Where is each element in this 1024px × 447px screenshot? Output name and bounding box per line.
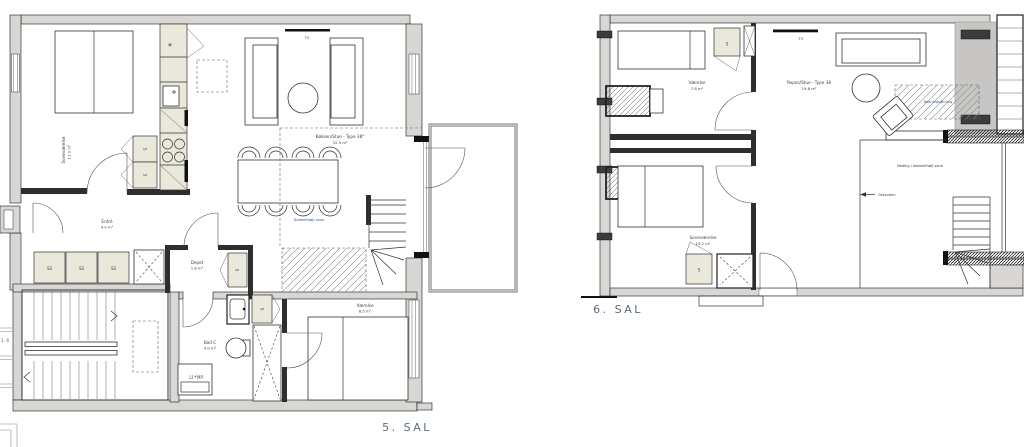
room1-furniture: S [618, 26, 755, 71]
room-label-kitchen-living: Køkken/Stue - Type 38* [316, 134, 365, 139]
kitchen-sink [163, 86, 179, 106]
room-area-bath: 4.0 m² [204, 346, 217, 351]
plan-6-sal: S S [581, 15, 1024, 316]
internal-stair [369, 200, 406, 285]
coffee-table [288, 83, 318, 113]
window-ladder [997, 15, 1023, 134]
dining-table [238, 160, 338, 203]
void-area [860, 140, 947, 288]
double-height-zone-label: Dobbelthøjt zone [294, 218, 326, 222]
room-label-bath: Bad C [204, 340, 216, 345]
wardrobe-label: S [698, 268, 701, 273]
double-height-zone-boundary [280, 128, 422, 292]
wardrobe-label: S [260, 308, 265, 311]
room-label-landing-living: Repos/Stue - Type 38 [787, 80, 831, 85]
internal-stair-6 [953, 197, 990, 288]
wardrobe-label: S [726, 42, 729, 47]
room-area-bedroom: 11.0 m² [67, 144, 72, 159]
room-area-kitchen-living: 32.9 m² [333, 140, 348, 145]
wardrobe-label: S [143, 174, 148, 177]
tv-wall-mark [285, 29, 330, 32]
sofa-right [330, 38, 363, 125]
room-area-entry: 4.0 m² [101, 225, 114, 230]
appliance-dashed [197, 60, 227, 92]
balcony [429, 124, 517, 292]
stair-arrow-down [24, 372, 30, 382]
room-label-storage: Depot [191, 260, 204, 265]
floorplan-sheet: * S S [0, 0, 1024, 447]
room-label-bedroom: Soveværelse [61, 136, 66, 163]
floor-label-6-sal: 6. SAL [593, 303, 643, 316]
room-area-storage: 1.8 m² [191, 266, 204, 271]
small-room-bed [308, 317, 408, 400]
exterior-landing [699, 296, 763, 306]
rescue-opening-label: Redningsåbning [924, 99, 953, 104]
washer-dryer-label: VM+TT [188, 374, 203, 379]
wardrobe-double-label: SS [47, 266, 53, 271]
storage-room: S [220, 253, 247, 287]
main-stairwell [22, 290, 168, 400]
glass-railing-label: Glasværn [878, 193, 895, 197]
bathroom: S VM+TT [178, 295, 281, 401]
wardrobe-double-label: SS [111, 266, 117, 271]
washer-dryer: VM+TT [178, 364, 212, 395]
room-label-entry: Entré [101, 219, 113, 224]
tv-label: TV [304, 36, 310, 40]
toilet [226, 338, 250, 358]
dining-set [238, 147, 341, 216]
room-area-room: 8.5 m² [359, 309, 372, 314]
double-bed [618, 166, 703, 227]
wardrobe-double-label: SS [79, 266, 85, 271]
floorplans-svg: * S S [0, 0, 1024, 447]
cutoff-label: 1. 6 [1, 338, 10, 344]
double-bed [55, 31, 133, 113]
room2-furniture: S [618, 166, 753, 288]
room-label-room: Værelse [356, 303, 374, 308]
shaft-dashed [133, 321, 158, 372]
stair-arrow-up [111, 311, 117, 321]
room-area-landing-living: 19.8 m² [802, 86, 817, 91]
room-label-bedroom: Soveværelse [690, 235, 717, 240]
freezer-icon: * [168, 42, 172, 51]
wardrobe-label: S [143, 148, 148, 151]
room-area-bedroom: 10.2 m² [696, 241, 711, 246]
room-area-room: 7.8 m² [691, 86, 704, 91]
wardrobe-label: S [235, 269, 240, 272]
void-hatch [282, 248, 366, 292]
room-label-room: Værelse [688, 80, 706, 85]
floor-label-5-sal: 5. SAL [382, 421, 432, 434]
kitchen-cabinets: * [160, 24, 227, 190]
tv-wall-mark [773, 30, 818, 33]
tall-wardrobe [253, 325, 281, 401]
plan-5-sal: * S S [0, 15, 517, 434]
coffee-table [852, 74, 880, 102]
bedroom-wardrobes: S S [121, 136, 157, 188]
tv-label: TV [798, 37, 804, 41]
single-bed [618, 31, 705, 69]
sofa-left [245, 38, 278, 125]
entry-cabinets: SS SS SS [34, 250, 164, 284]
void-zone-label: Nedkig i dobbelthøjt zone [897, 164, 944, 168]
window-sill-upper [886, 130, 1024, 143]
